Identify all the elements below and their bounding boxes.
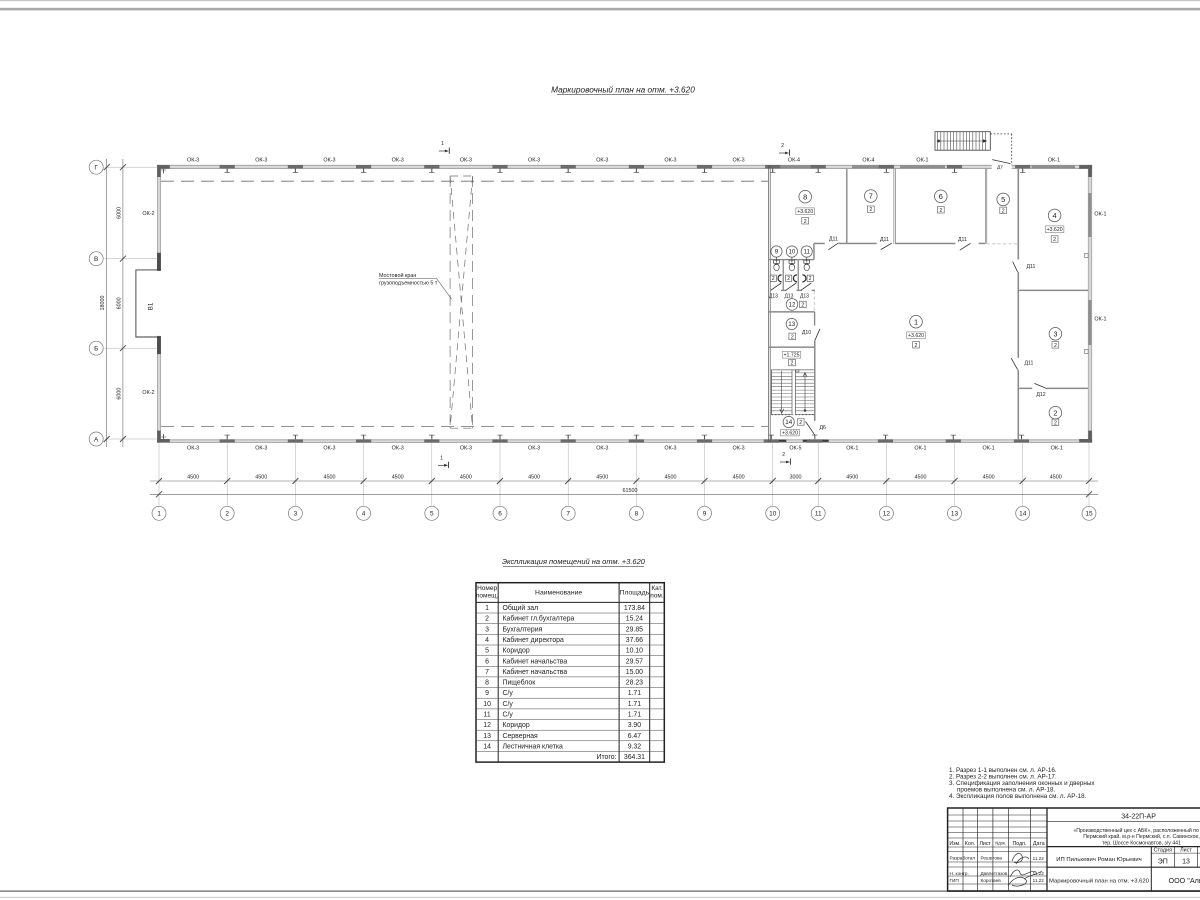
svg-text:Маркировочный план на отм. +3: Маркировочный план на отм. +3.620 [551, 85, 695, 95]
svg-text:А: А [94, 436, 99, 443]
svg-text:10: 10 [769, 511, 777, 518]
svg-text:6000: 6000 [116, 297, 122, 309]
svg-text:3.90: 3.90 [628, 722, 642, 729]
svg-text:3: 3 [485, 626, 489, 633]
svg-text:Кабинет начальства: Кабинет начальства [503, 657, 568, 665]
svg-text:Д11: Д11 [1025, 361, 1034, 367]
svg-text:2: 2 [809, 276, 812, 282]
svg-text:2: 2 [791, 334, 794, 340]
svg-text:+3.620: +3.620 [1047, 227, 1063, 233]
svg-text:4500: 4500 [915, 475, 927, 481]
svg-text:1: 1 [914, 317, 918, 326]
svg-text:4500: 4500 [255, 475, 267, 481]
svg-text:ОК-3: ОК-3 [733, 446, 745, 452]
svg-text:Д10: Д10 [802, 330, 811, 336]
svg-text:29.57: 29.57 [626, 658, 643, 665]
svg-text:4500: 4500 [665, 475, 677, 481]
svg-text:11.22: 11.22 [1033, 856, 1045, 861]
svg-text:5: 5 [430, 511, 434, 518]
svg-text:Серверная: Серверная [503, 733, 539, 740]
svg-text:7: 7 [566, 511, 570, 518]
svg-text:9: 9 [703, 511, 707, 518]
svg-text:6000: 6000 [116, 388, 122, 400]
svg-text:ОК-1: ОК-1 [916, 158, 928, 164]
svg-text:9.32: 9.32 [628, 744, 642, 751]
svg-text:12: 12 [483, 722, 491, 729]
svg-text:5: 5 [1001, 195, 1005, 204]
svg-text:4500: 4500 [392, 475, 404, 481]
svg-text:2: 2 [787, 276, 790, 282]
svg-text:15: 15 [1085, 511, 1093, 518]
svg-text:Площадь: Площадь [620, 590, 650, 597]
svg-text:+3.620: +3.620 [782, 431, 798, 437]
svg-text:Кол.: Кол. [965, 841, 975, 847]
svg-text:2: 2 [772, 276, 775, 282]
svg-text:10: 10 [483, 701, 491, 708]
svg-text:ООО "Альянс: ООО "Альянс [1169, 876, 1200, 885]
svg-text:3: 3 [1053, 330, 1057, 339]
svg-text:+1.725: +1.725 [783, 353, 799, 359]
svg-text:«Производственный цех с АБК»,: «Производственный цех с АБК», расположен… [1073, 827, 1200, 834]
svg-text:ОК-3: ОК-3 [392, 446, 404, 452]
svg-text:Лист: Лист [979, 841, 991, 847]
svg-text:4500: 4500 [596, 475, 608, 481]
svg-text:Кабинет начальства: Кабинет начальства [503, 668, 568, 676]
svg-text:4500: 4500 [733, 475, 745, 481]
svg-text:4500: 4500 [983, 475, 995, 481]
svg-text:10.10: 10.10 [626, 648, 643, 655]
svg-text:ОК-1: ОК-1 [1094, 317, 1106, 323]
svg-text:11.22: 11.22 [1033, 878, 1045, 883]
svg-text:1: 1 [485, 605, 489, 612]
svg-text:ОК-3: ОК-3 [596, 446, 608, 452]
svg-text:13: 13 [788, 321, 795, 328]
svg-text:Д13: Д13 [800, 293, 809, 299]
svg-text:2: 2 [1002, 208, 1005, 214]
svg-text:ОК-3: ОК-3 [323, 446, 335, 452]
svg-text:2: 2 [1053, 408, 1057, 417]
svg-text:2: 2 [781, 143, 784, 149]
svg-text:4: 4 [485, 637, 489, 644]
svg-text:2: 2 [782, 452, 785, 458]
svg-text:Пермский край, м.р-н Пермский,: Пермский край, м.р-н Пермский, с.п. Сави… [1083, 833, 1200, 840]
svg-text:9: 9 [775, 249, 779, 256]
svg-text:Стадия: Стадия [1154, 848, 1172, 854]
svg-text:7: 7 [485, 669, 489, 676]
svg-text:15.00: 15.00 [626, 669, 643, 676]
svg-text:Д7: Д7 [997, 165, 1003, 171]
svg-text:10: 10 [788, 249, 795, 256]
svg-text:1: 1 [441, 141, 444, 147]
svg-text:14: 14 [483, 744, 491, 751]
svg-text:11: 11 [803, 249, 810, 256]
svg-text:Пищеблок: Пищеблок [503, 679, 537, 687]
svg-text:+3.620: +3.620 [797, 209, 813, 215]
svg-text:ОК-1: ОК-1 [914, 446, 926, 452]
svg-text:11: 11 [484, 712, 491, 719]
svg-text:Кабинет гл.бухгалтера: Кабинет гл.бухгалтера [503, 615, 575, 623]
svg-text:Г: Г [94, 165, 98, 172]
svg-text:7: 7 [869, 192, 873, 201]
svg-text:ОК-1: ОК-1 [983, 446, 995, 452]
svg-text:14: 14 [785, 419, 792, 426]
svg-text:Nдок.: Nдок. [995, 841, 1006, 846]
svg-text:5: 5 [485, 648, 489, 655]
svg-text:2: 2 [485, 616, 489, 623]
svg-text:помещ.: помещ. [476, 593, 499, 600]
svg-text:8: 8 [485, 680, 489, 687]
svg-text:Б: Б [94, 346, 98, 353]
svg-text:Д12: Д12 [1036, 392, 1045, 398]
svg-text:Подп.: Подп. [1012, 841, 1026, 847]
svg-text:пом.: пом. [650, 593, 664, 600]
svg-text:ГИП: ГИП [950, 878, 959, 883]
svg-text:6.47: 6.47 [628, 733, 642, 740]
svg-text:Лестничная клетка: Лестничная клетка [503, 744, 564, 751]
svg-text:Лист: Лист [1180, 848, 1192, 854]
svg-text:ОК-3: ОК-3 [664, 446, 676, 452]
svg-text:13: 13 [1182, 859, 1190, 866]
svg-text:ОК-3: ОК-3 [664, 158, 676, 164]
svg-text:37.66: 37.66 [626, 637, 643, 644]
svg-text:Общий зал: Общий зал [503, 604, 539, 612]
svg-text:Коридор: Коридор [503, 648, 530, 655]
svg-text:2: 2 [791, 361, 794, 367]
svg-text:1.71: 1.71 [628, 712, 642, 719]
svg-text:Кат.: Кат. [651, 585, 663, 592]
svg-text:13: 13 [951, 511, 959, 518]
svg-text:Д11: Д11 [829, 237, 838, 243]
svg-text:2: 2 [1054, 420, 1057, 426]
svg-text:13: 13 [483, 733, 491, 740]
svg-text:ОК-3: ОК-3 [596, 158, 608, 164]
svg-text:4500: 4500 [187, 475, 199, 481]
svg-text:ОК-2: ОК-2 [142, 211, 154, 217]
svg-text:Итого:: Итого: [597, 754, 617, 761]
svg-text:В: В [94, 256, 98, 263]
svg-text:2: 2 [799, 420, 802, 426]
svg-text:2: 2 [915, 343, 918, 349]
svg-text:2: 2 [869, 207, 872, 213]
svg-text:грузоподъемностью 5 т: грузоподъемностью 5 т [379, 281, 438, 287]
svg-text:Д6: Д6 [820, 425, 827, 431]
svg-text:Д11: Д11 [1027, 264, 1036, 270]
svg-text:4500: 4500 [460, 475, 472, 481]
svg-text:6: 6 [485, 658, 489, 665]
svg-text:Изм.: Изм. [949, 841, 960, 847]
svg-text:14: 14 [1019, 511, 1027, 518]
svg-text:ОК-3: ОК-3 [255, 158, 267, 164]
svg-text:Д13: Д13 [769, 293, 778, 299]
svg-text:ОК-3: ОК-3 [255, 446, 267, 452]
svg-text:4500: 4500 [528, 475, 540, 481]
svg-text:Мостовой кран: Мостовой кран [379, 272, 416, 279]
svg-text:ОК-5: ОК-5 [789, 446, 801, 452]
svg-text:ОК-1: ОК-1 [846, 446, 858, 452]
svg-text:3: 3 [294, 511, 298, 518]
svg-text:Экспликация помещений на отм.: Экспликация помещений на отм. +3.620 [502, 557, 646, 566]
svg-text:1: 1 [157, 511, 161, 518]
svg-text:ОК-3: ОК-3 [187, 446, 199, 452]
svg-text:3000: 3000 [790, 475, 802, 481]
svg-text:ЭП: ЭП [1158, 859, 1168, 866]
svg-text:ОК-1: ОК-1 [1094, 212, 1106, 218]
svg-text:12: 12 [883, 511, 891, 518]
svg-text:2: 2 [939, 208, 942, 214]
svg-text:ОК-3: ОК-3 [528, 158, 540, 164]
svg-text:6000: 6000 [116, 207, 122, 219]
svg-text:ОК-1: ОК-1 [1051, 446, 1063, 452]
svg-text:2: 2 [801, 302, 804, 308]
svg-text:364.31: 364.31 [624, 754, 645, 761]
svg-text:15.24: 15.24 [626, 616, 643, 623]
svg-text:ОК-3: ОК-3 [460, 446, 472, 452]
svg-text:34-22П-АР: 34-22П-АР [1121, 813, 1156, 820]
svg-text:1.71: 1.71 [628, 701, 642, 708]
svg-text:Давлетгазов: Давлетгазов [981, 871, 1008, 876]
svg-text:4500: 4500 [324, 475, 336, 481]
svg-text:ОК-4: ОК-4 [862, 158, 874, 164]
svg-text:Кабинет директора: Кабинет директора [503, 636, 564, 644]
svg-text:2: 2 [1054, 343, 1057, 349]
svg-text:Дата: Дата [1033, 841, 1045, 847]
svg-text:8: 8 [635, 511, 639, 518]
svg-text:ОК-3: ОК-3 [323, 158, 335, 164]
svg-text:4500: 4500 [1050, 475, 1062, 481]
svg-text:ОК-4: ОК-4 [788, 158, 800, 164]
svg-text:1.71: 1.71 [628, 690, 642, 697]
svg-text:С/у: С/у [503, 701, 514, 708]
svg-text:2: 2 [804, 219, 807, 225]
svg-text:Д11: Д11 [958, 237, 967, 243]
svg-text:2: 2 [1053, 237, 1056, 243]
svg-text:2: 2 [225, 511, 229, 518]
svg-text:173.84: 173.84 [624, 605, 645, 612]
svg-text:28.23: 28.23 [626, 680, 643, 687]
svg-text:ОК-3: ОК-3 [733, 158, 745, 164]
svg-text:4. Экспликация полов выполнена: 4. Экспликация полов выполнена см. л. АР… [949, 793, 1087, 800]
svg-text:ОК-3: ОК-3 [460, 158, 472, 164]
svg-text:Н. контр.: Н. контр. [950, 871, 969, 876]
svg-text:6: 6 [498, 511, 502, 518]
svg-text:4500: 4500 [846, 475, 858, 481]
svg-text:29.85: 29.85 [626, 626, 643, 633]
svg-text:11: 11 [815, 511, 822, 518]
svg-text:С/у: С/у [503, 712, 514, 719]
svg-text:9: 9 [485, 690, 489, 697]
svg-text:1: 1 [440, 455, 443, 461]
svg-text:Коридор: Коридор [503, 722, 530, 729]
svg-text:6: 6 [939, 192, 943, 201]
svg-text:Д11: Д11 [880, 237, 889, 243]
svg-text:ОК-3: ОК-3 [392, 158, 404, 164]
svg-text:18000: 18000 [100, 296, 106, 311]
svg-text:Решетова: Решетова [981, 856, 1003, 861]
svg-text:ОК-1: ОК-1 [1048, 158, 1060, 164]
svg-text:Разработал: Разработал [950, 856, 976, 861]
svg-text:4: 4 [1053, 211, 1057, 220]
svg-text:ОК-2: ОК-2 [142, 390, 154, 396]
svg-text:В1: В1 [147, 302, 154, 310]
svg-text:+3.620: +3.620 [908, 333, 924, 339]
svg-text:Номер: Номер [477, 585, 497, 592]
svg-text:ОК-3: ОК-3 [528, 446, 540, 452]
svg-text:Наименование: Наименование [535, 590, 582, 597]
svg-text:ОК-3: ОК-3 [187, 158, 199, 164]
svg-text:61500: 61500 [623, 488, 638, 494]
svg-text:С/у: С/у [503, 690, 514, 697]
svg-text:Бухгалтерия: Бухгалтерия [503, 626, 543, 633]
svg-text:тер. Шоссе Космонавтов, з/у 44: тер. Шоссе Космонавтов, з/у 441 [1102, 840, 1181, 846]
svg-text:4: 4 [362, 511, 366, 518]
svg-text:12: 12 [789, 302, 796, 309]
svg-text:ИП Пилькевич Роман Юрьевич: ИП Пилькевич Роман Юрьевич [1056, 857, 1141, 863]
svg-text:8: 8 [803, 192, 807, 201]
svg-text:Маркировочный план на отм. +3.: Маркировочный план на отм. +3.620 [1049, 878, 1150, 885]
svg-text:Коротаев: Коротаев [981, 878, 1002, 883]
svg-text:11.22: 11.22 [1033, 871, 1045, 876]
